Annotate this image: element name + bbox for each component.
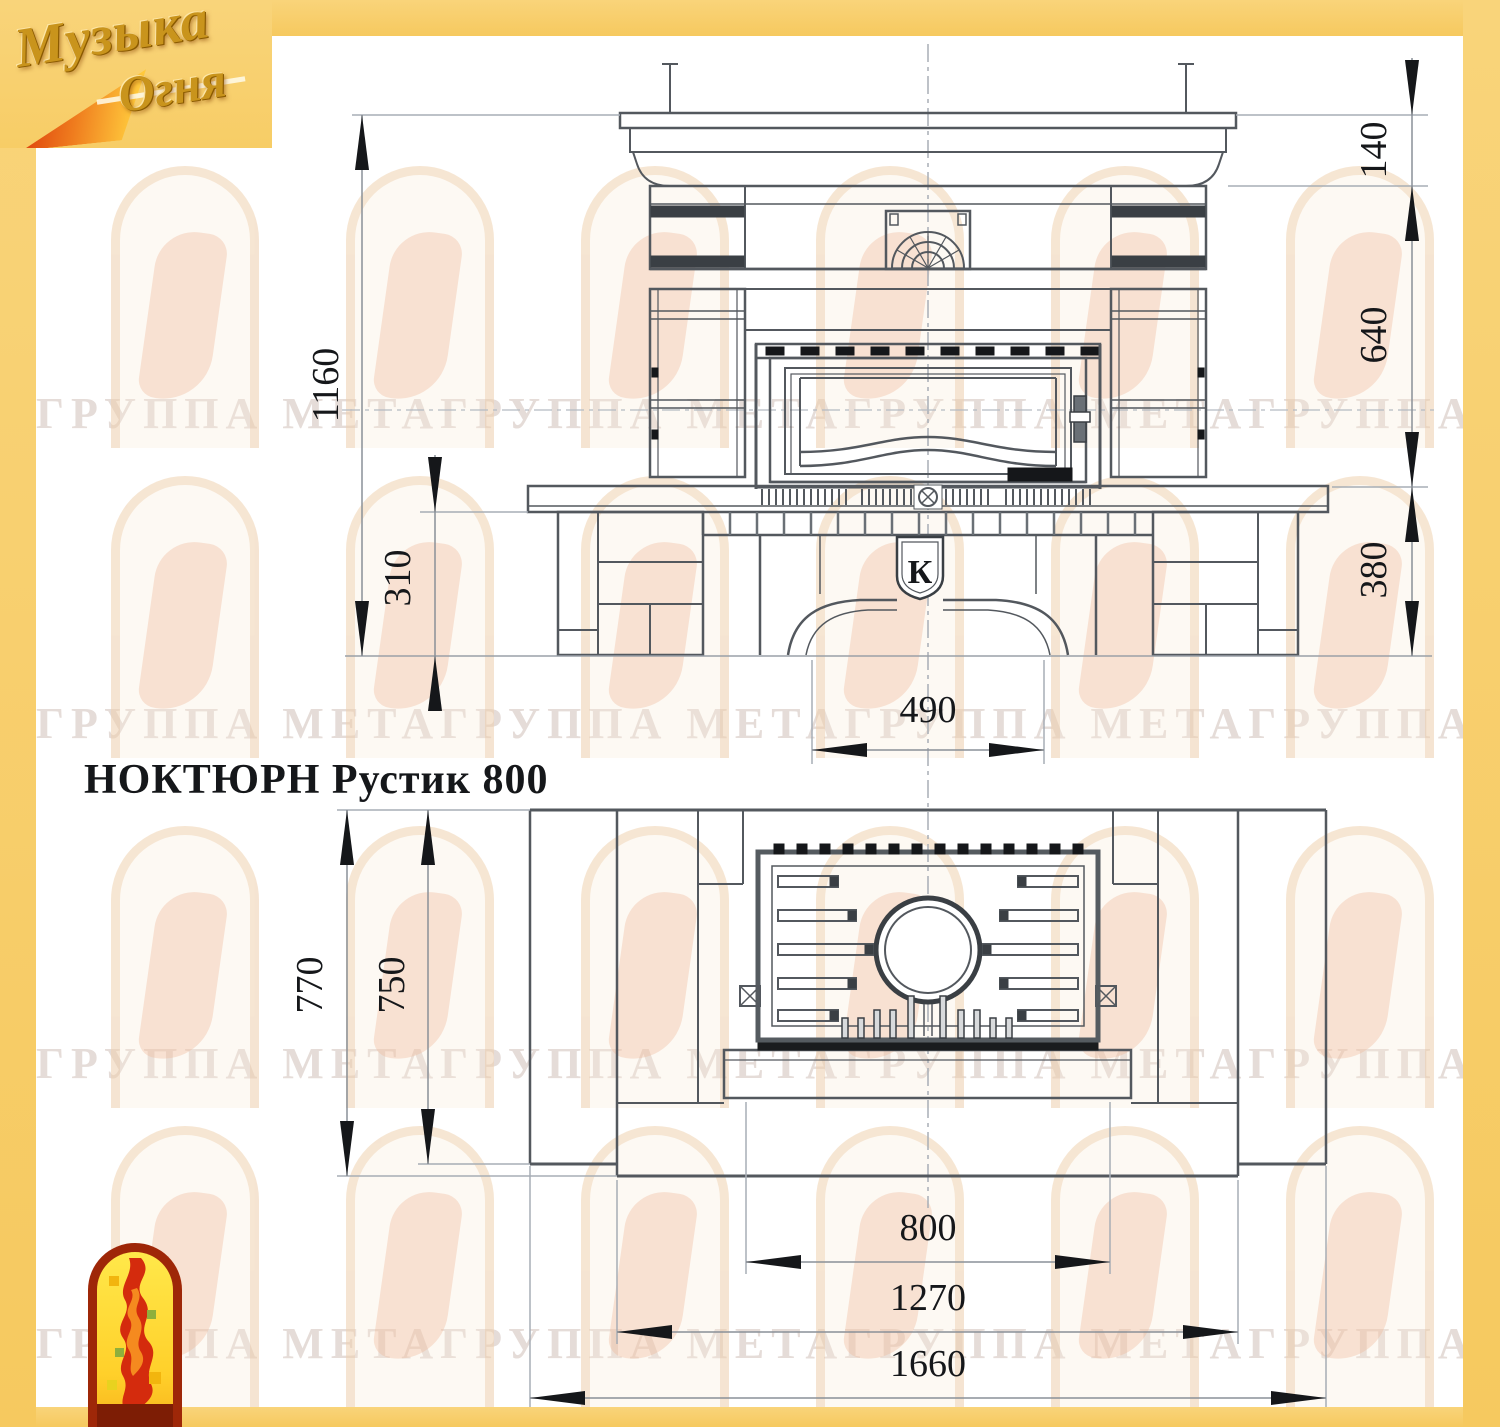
dim-label-depth-total: 770 bbox=[289, 957, 331, 1014]
dim-label-bench-height: 380 bbox=[1353, 542, 1395, 599]
front-view: К bbox=[528, 64, 1328, 655]
page-title: НОКТЮРН Рустик 800 bbox=[84, 756, 548, 804]
centerlines bbox=[342, 44, 1434, 1208]
brand-logo: Музыка Огня bbox=[0, 0, 272, 148]
emblem-letter: К bbox=[908, 554, 933, 591]
plan-view bbox=[530, 810, 1326, 1176]
flame-logo bbox=[88, 1243, 182, 1427]
dim-label-cornice-height: 140 bbox=[1353, 122, 1395, 179]
frame-bottom bbox=[0, 1407, 1500, 1427]
dimensions: 116031014064038049077075080012701660 bbox=[289, 58, 1432, 1410]
frame-left bbox=[0, 0, 36, 1427]
dim-label-body-width: 1270 bbox=[890, 1277, 966, 1319]
dim-label-arch-width: 490 bbox=[900, 689, 957, 731]
flame-figure-icon bbox=[97, 1252, 173, 1427]
dim-label-total-height: 1160 bbox=[305, 348, 347, 423]
dim-label-depth-inner: 750 bbox=[371, 957, 413, 1014]
dim-label-insert-width: 800 bbox=[900, 1207, 957, 1249]
dim-label-plinth-height: 310 bbox=[377, 550, 419, 607]
technical-drawing: К116031014064038049077075080012701660 bbox=[0, 0, 1500, 1427]
dim-label-total-width: 1660 bbox=[890, 1343, 966, 1385]
frame-right bbox=[1463, 0, 1500, 1427]
page: { "title": { "text": "НОКТЮРН Рустик 800… bbox=[0, 0, 1500, 1427]
dim-label-firebox-height: 640 bbox=[1353, 307, 1395, 364]
